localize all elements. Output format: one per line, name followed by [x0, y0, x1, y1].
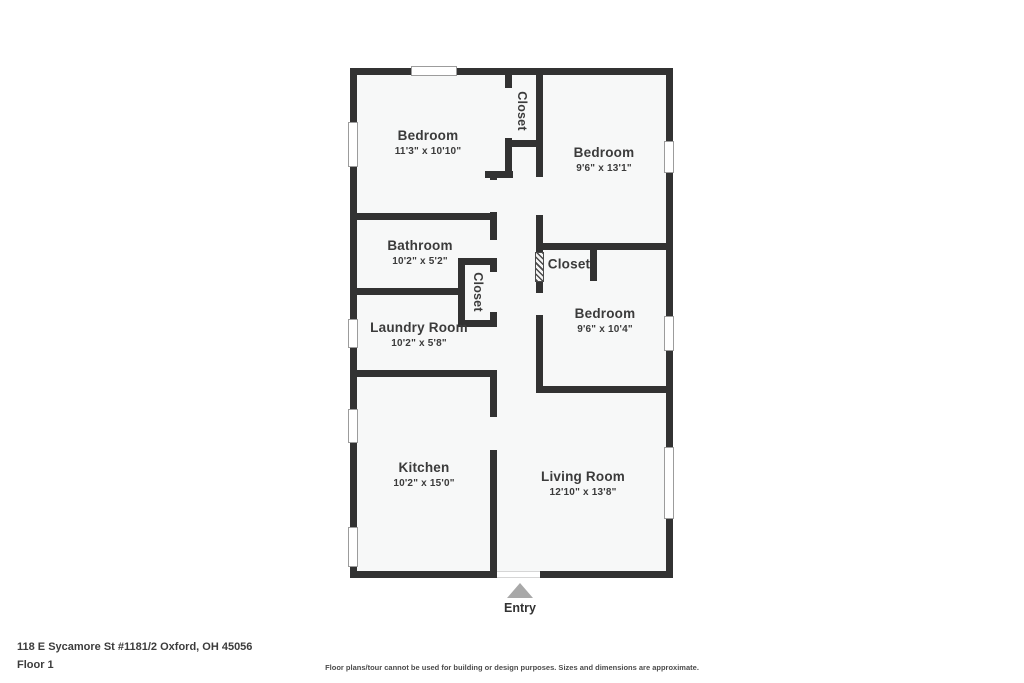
laundry-south-wall: [350, 370, 497, 377]
room-dimensions: 10'2" x 5'2": [387, 256, 452, 267]
room-label-closet-hall: Closet: [470, 272, 484, 311]
room-name: Laundry Room: [370, 321, 468, 336]
hall-recess-wall: [485, 171, 513, 178]
bedroom3-door: [536, 293, 543, 315]
entry-arrow-icon: [507, 583, 533, 598]
room-name: Bedroom: [575, 307, 636, 322]
bedroom-closet-louver-door: [535, 252, 544, 282]
room-name: Kitchen: [393, 461, 454, 476]
room-name: Closet: [470, 272, 484, 311]
disclaimer-text: Floor plans/tour cannot be used for buil…: [325, 663, 699, 672]
window-right-2: [664, 316, 674, 351]
window-right-1: [664, 141, 674, 173]
floor-label: Floor 1: [17, 659, 54, 671]
room-name: Closet: [514, 91, 528, 130]
room-dimensions: 9'6" x 10'4": [575, 324, 636, 335]
room-dimensions: 9'6" x 13'1": [574, 163, 635, 174]
bathroom-door: [490, 240, 497, 258]
address-line: 118 E Sycamore St #1181/2 Oxford, OH 450…: [17, 641, 252, 653]
bedroom2-south-wall: [536, 243, 673, 250]
room-label-living-room: Living Room12'10" x 13'8": [541, 470, 625, 498]
room-name: Bathroom: [387, 239, 452, 254]
room-label-closet-top: Closet: [514, 91, 528, 130]
room-dimensions: 10'2" x 15'0": [393, 478, 454, 489]
bedroom3-south-wall: [536, 386, 673, 393]
room-dimensions: 11'3" x 10'10": [395, 146, 462, 157]
room-label-bathroom: Bathroom10'2" x 5'2": [387, 239, 452, 267]
room-dimensions: 12'10" x 13'8": [541, 487, 625, 498]
hallway-west-wall: [490, 178, 497, 578]
room-label-bedroom-3: Bedroom9'6" x 10'4": [575, 307, 636, 335]
room-label-bedroom-1: Bedroom11'3" x 10'10": [395, 129, 462, 157]
room-label-kitchen: Kitchen10'2" x 15'0": [393, 461, 454, 489]
bedroom-closet-east-wall: [590, 250, 597, 281]
window-left-3: [348, 409, 358, 443]
hall-closet-west-wall: [458, 258, 465, 327]
outer-wall-top: [350, 68, 673, 75]
room-dimensions: 10'2" x 5'8": [370, 338, 468, 349]
bedroom2-door: [536, 177, 543, 215]
laundry-opening: [490, 327, 497, 370]
room-name: Living Room: [541, 470, 625, 485]
window-left-4: [348, 527, 358, 567]
room-label-bedroom-2: Bedroom9'6" x 13'1": [574, 146, 635, 174]
entry-opening: [497, 571, 540, 578]
bedroom1-door: [490, 180, 497, 212]
floor-plan: Entry 118 E Sycamore St #1181/2 Oxford, …: [0, 0, 1024, 683]
room-name: Closet: [548, 258, 590, 273]
window-left-2: [348, 319, 358, 348]
entry-label: Entry: [504, 601, 536, 615]
room-name: Bedroom: [395, 129, 462, 144]
hallway-east-wall: [536, 75, 543, 393]
window-right-3: [664, 447, 674, 519]
room-label-laundry-room: Laundry Room10'2" x 5'8": [370, 321, 468, 349]
window-top: [411, 66, 457, 76]
bedroom1-south-wall: [350, 213, 497, 220]
bathroom-south-wall: [350, 288, 465, 295]
closet-top-door: [505, 88, 512, 138]
room-name: Bedroom: [574, 146, 635, 161]
hall-closet-door: [490, 272, 497, 312]
kitchen-door: [490, 417, 497, 450]
window-left-1: [348, 122, 358, 167]
room-label-closet-bedroom: Closet: [548, 258, 590, 273]
